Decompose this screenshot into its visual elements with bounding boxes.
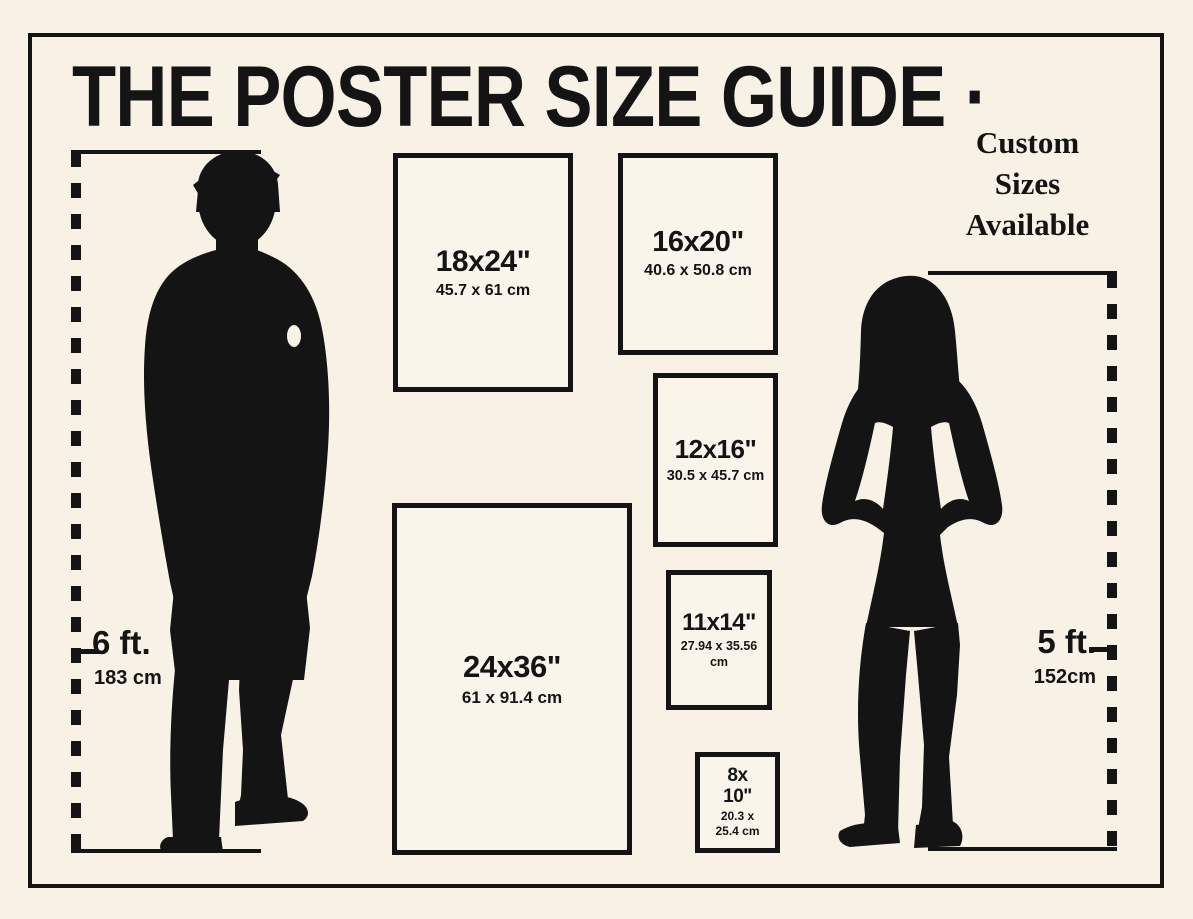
poster-size-inches: 18x24" (436, 245, 531, 278)
custom-note-line-2: Sizes (915, 163, 1140, 204)
poster-box-8x10: 8x 10" 20.3 x 25.4 cm (695, 752, 780, 853)
custom-sizes-note: Custom Sizes Available (915, 122, 1140, 245)
poster-box-12x16: 12x16" 30.5 x 45.7 cm (653, 373, 778, 547)
poster-box-11x14: 11x14" 27.94 x 35.56 cm (666, 570, 772, 710)
poster-size-inches-line1: 8x (727, 766, 747, 787)
woman-silhouette-icon (812, 275, 1012, 855)
poster-size-cm: 45.7 x 61 cm (436, 281, 530, 301)
poster-size-inches: 12x16" (675, 435, 757, 464)
male-height-dashed-line (71, 152, 81, 851)
page-title: THE POSTER SIZE GUIDE · (72, 54, 988, 140)
female-height-dashed-line (1107, 273, 1117, 849)
poster-box-16x20: 16x20" 40.6 x 50.8 cm (618, 153, 778, 355)
man-silhouette-icon (130, 150, 350, 855)
poster-size-cm: 27.94 x 35.56 cm (671, 639, 767, 670)
custom-note-line-1: Custom (915, 122, 1140, 163)
custom-note-line-3: Available (915, 204, 1140, 245)
poster-size-inches: 24x36" (463, 650, 561, 684)
poster-size-guide: THE POSTER SIZE GUIDE · Custom Sizes Ava… (0, 0, 1193, 919)
poster-size-cm: 30.5 x 45.7 cm (667, 467, 765, 485)
poster-size-inches: 11x14" (682, 610, 756, 636)
poster-size-cm-line2: 25.4 cm (715, 824, 759, 839)
poster-box-24x36: 24x36" 61 x 91.4 cm (392, 503, 632, 855)
poster-size-inches-line2: 10" (723, 787, 752, 808)
poster-size-cm: 40.6 x 50.8 cm (644, 261, 752, 281)
poster-box-18x24: 18x24" 45.7 x 61 cm (393, 153, 573, 392)
poster-size-cm-line1: 20.3 x (721, 809, 754, 824)
female-height-cm-label: 152cm (1000, 667, 1096, 687)
poster-size-cm: 61 x 91.4 cm (462, 687, 562, 708)
female-height-feet-label: 5 ft. (1000, 625, 1096, 658)
poster-size-inches: 16x20" (652, 227, 743, 259)
